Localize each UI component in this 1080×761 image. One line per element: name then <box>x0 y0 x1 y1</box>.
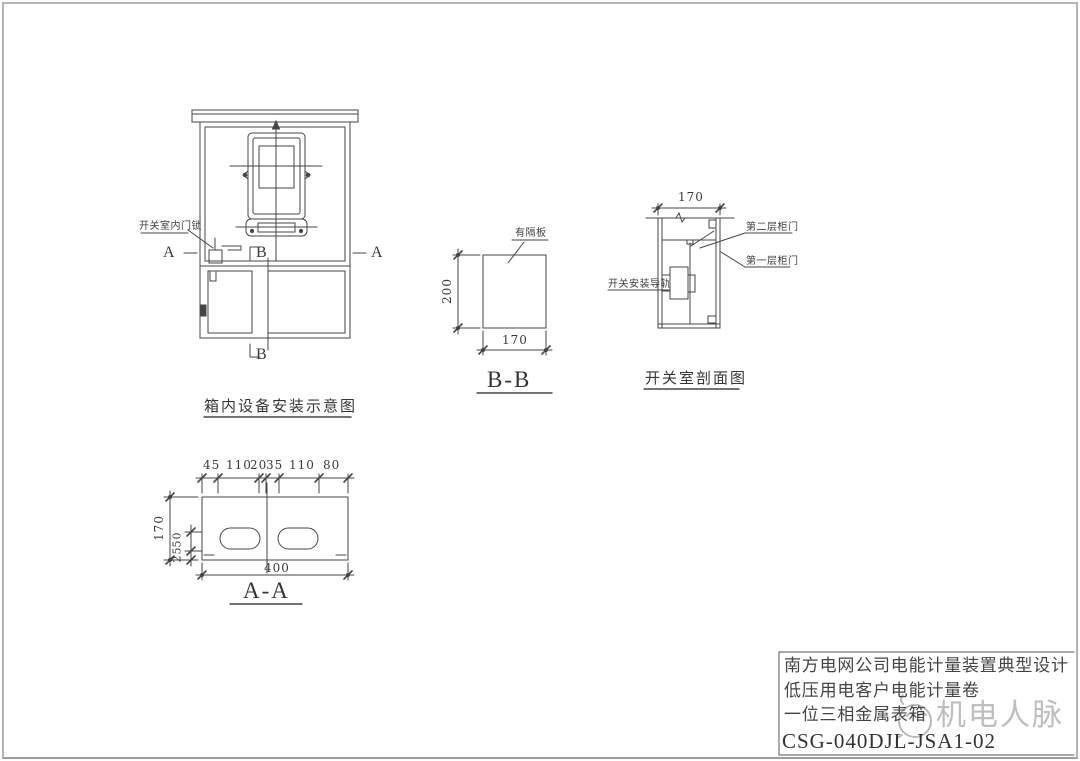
switch-room-view-title: 开关室剖面图 <box>645 371 739 386</box>
section-a-marker-left: A <box>163 245 175 261</box>
aa-dim-110a: 110 <box>226 459 252 471</box>
aa-dim-110b: 110 <box>289 459 315 471</box>
aa-dim-25: 25 <box>172 545 183 565</box>
aa-view-title: A-A <box>243 579 290 602</box>
rail-label: 开关安装导轨 <box>608 280 671 290</box>
bb-dim-height: 200 <box>441 278 453 304</box>
bb-dim-width: 170 <box>502 334 528 346</box>
drawing-sheet: 开关室内门锁 A A B B 箱内设备安装示意图 有隔板 200 170 B-B… <box>0 0 1080 761</box>
title-block-row2: 低压用电客户电能计量卷 <box>784 682 980 699</box>
aa-dim-80: 80 <box>323 459 340 471</box>
cabinet-front-view <box>141 110 366 417</box>
bb-view-title: B-B <box>487 368 531 391</box>
section-b-marker-top: B <box>256 245 267 261</box>
drawing-number: CSG-040DJL-JSA1-02 <box>782 731 996 752</box>
title-block-row3: 一位三相金属表箱 <box>784 706 926 723</box>
aa-dim-height: 170 <box>153 515 165 541</box>
aa-dim-35: 35 <box>266 459 283 471</box>
partition-label: 有隔板 <box>515 229 547 239</box>
aa-dim-20: 20 <box>250 459 267 471</box>
door-layer2-label: 第二层柜门 <box>746 223 799 233</box>
aa-dim-45: 45 <box>203 459 220 471</box>
door-lock-graphic <box>209 238 241 281</box>
cad-linework <box>0 0 1080 761</box>
cabinet-view-title: 箱内设备安装示意图 <box>204 399 351 414</box>
watermark-text: 机电人脉 <box>936 701 1064 731</box>
door-lock-label: 开关室内门锁 <box>139 222 202 232</box>
door-layer1-label: 第一层柜门 <box>746 257 799 267</box>
meter-graphic <box>230 121 322 261</box>
section-b-marker-bottom: B <box>256 347 267 363</box>
section-a-marker-right: A <box>371 245 383 261</box>
title-block-row1: 南方电网公司电能计量装置典型设计 <box>784 657 1069 674</box>
aa-dim-total: 400 <box>264 562 290 574</box>
sr-dim-width: 170 <box>678 191 704 203</box>
